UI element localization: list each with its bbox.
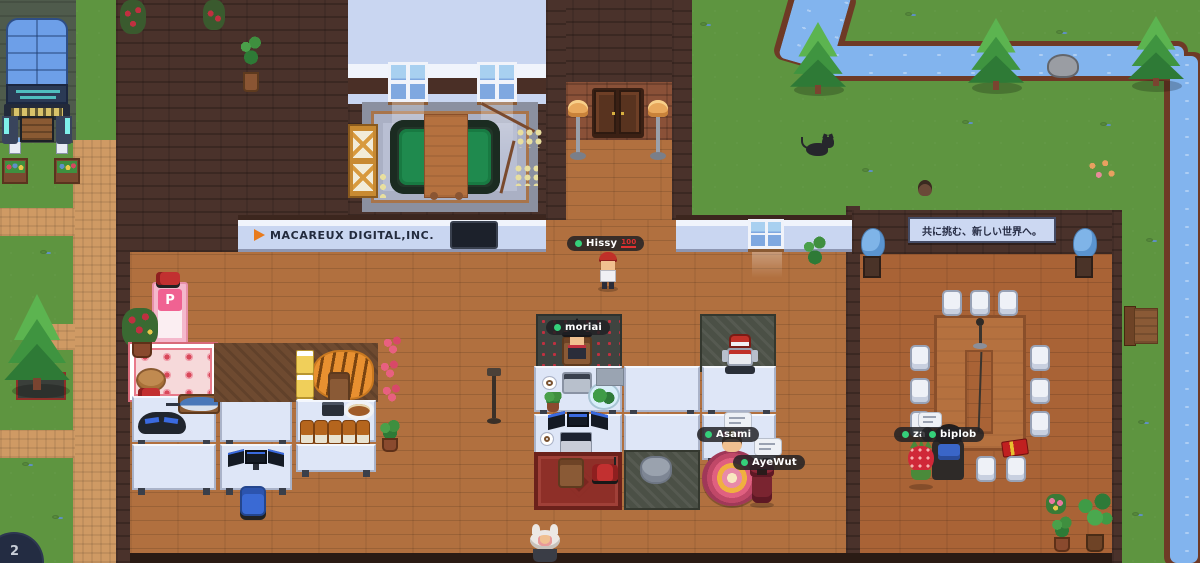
conference-chair [976,456,996,482]
grass-tuft [22,462,29,466]
flower-planter [2,158,28,184]
wall-divider [846,206,860,563]
grass-tuft [1056,30,1063,34]
wall-flower-bush [203,0,225,30]
statue-pedestal [1075,256,1093,278]
lamp-shade [648,100,668,117]
bench-seat [1134,308,1158,344]
plant-leaves [378,420,402,440]
rack-top [487,368,501,376]
river-water [1170,56,1198,563]
hanging-flowers [380,334,406,356]
bunny-robe [533,549,557,562]
plant-pot [1054,537,1070,552]
rc-antenna [614,457,616,465]
bean-bag [640,456,672,484]
company-sign: MACAREUX DIGITAL,INC. [254,224,464,246]
branch-decor [468,106,544,200]
puffin-statue [860,226,884,280]
plant-leaves [238,30,264,72]
truck-ramp [20,116,54,142]
mic-pole [979,325,982,344]
whiskey-bottle [300,420,314,444]
conference-chair [910,345,930,371]
robot-body [727,348,753,366]
robot-head [729,334,751,348]
printer [562,372,592,394]
desk [220,396,292,442]
corner-badge-count: 2 [10,544,19,559]
door-pane [353,131,373,158]
potted-plant [1050,516,1074,554]
planter-flowers [5,161,25,173]
entrance-column [672,0,692,220]
robot [724,334,756,376]
parking-sign-face [158,310,182,338]
company-sign-text: MACAREUX DIGITAL,INC. [270,229,434,242]
grass-tuft [862,168,869,172]
nametag-biplob: biplob [921,427,984,442]
pine-tree [790,22,846,94]
grass-tuft [905,12,912,16]
runner-knob [455,192,463,200]
entrance-lamp [568,100,588,166]
conference-chair [1030,345,1050,371]
conference-chair [942,290,962,316]
monitor-stand [253,464,259,470]
entrance-column [546,0,566,220]
bunny-face [538,535,552,546]
delivery-truck [2,16,74,142]
door-pane [353,164,373,191]
monitor-screen [164,417,179,424]
branch-leaves [514,164,538,186]
tall-potted-plant [238,30,264,94]
avatar-shadow [598,286,618,292]
branch-leaves [516,128,542,148]
hissy-legs [602,282,607,289]
office-chair-blue [240,486,266,516]
monitor-screen [268,449,284,467]
statue-bird-body [861,228,885,258]
window [388,62,428,102]
grass-tuft [40,250,47,254]
monitor-screen [245,450,267,464]
game-map[interactable]: MACAREUX DIGITAL,INC. 共に挑む、新しい世界へ。 P [0,0,1200,563]
statue-pedestal [863,256,881,278]
truck-band-text [20,96,56,99]
avatar-hissy[interactable] [596,252,620,292]
nametag-ayewut: AyeWut [733,455,805,470]
flower-pot [132,342,152,358]
whiskey-bottle [314,420,328,444]
conference-chair [998,290,1018,316]
robot-arm [722,350,728,362]
status-dot [575,240,582,247]
truck-cab-right [56,116,72,144]
status-dot [705,431,712,438]
rack-pole [492,376,496,418]
bar-counter [296,444,376,472]
robot-arm [752,350,758,362]
coat-rack [486,368,502,426]
large-plant [1076,490,1114,556]
triple-monitor [228,448,284,472]
monitor-screen [591,411,608,430]
path-branch-south [0,430,75,458]
conference-chair [1030,411,1050,437]
grass-tuft [700,22,707,26]
robot-treads [725,366,755,374]
lamp-shade [568,100,588,117]
player-name: Hissy [586,238,617,249]
entrance-lamp [648,100,668,166]
microphone-stand [972,318,988,350]
company-logo-icon [254,229,265,241]
moriai-body [568,345,586,359]
wall-bottom [130,553,852,563]
window [477,62,517,102]
monitor-screen [228,449,244,467]
bread-plate [344,400,374,420]
grass-tuft [1146,238,1153,242]
status-dot [741,459,748,466]
truck-canopy [6,18,68,88]
coffee-cup [542,376,557,390]
wall-tv [450,221,498,249]
desk [132,444,216,490]
coffee-machine [322,402,344,416]
corner-badge[interactable] [0,532,44,563]
parking-sign-plate: P [158,289,182,311]
conference-chair [1006,456,1026,482]
message-bubble [754,438,782,456]
plant-pot [382,438,398,452]
window [748,219,784,249]
status-dot [902,431,909,438]
wall-bottom [852,553,1112,563]
nametag-asami: Asami [697,427,759,442]
hanging-flowers [377,358,403,380]
flower-planter [54,158,80,184]
ayewut-robe [752,477,772,503]
avatar-shadow [909,484,933,490]
lamp-base [650,152,666,160]
river-rock [1047,54,1079,78]
lamp-pole [656,117,660,153]
bird [918,180,932,196]
hissy-legs [609,282,614,289]
plant-fronds [1076,490,1114,536]
wall-flower-bush [120,0,146,34]
plant-pot [1086,534,1104,552]
hundred-emoji-icon: 100 [621,239,636,248]
door-handle [621,112,624,115]
statue-bird-body [1073,228,1097,258]
whiskey-bottle [342,420,356,444]
path-branch-west [0,208,75,236]
pine-tree-large [4,294,70,390]
grass-tuft [1132,512,1139,516]
table-runner [424,114,468,198]
conference-chair [910,378,930,404]
banner-text: 共に挑む、新しい世界へ。 [922,223,1042,238]
monitor-screen [145,417,160,424]
pine-tree [968,18,1024,90]
beer-mug [296,350,314,374]
rack-base [487,418,501,424]
hissy-face [601,261,615,270]
hissy-body [600,270,616,282]
grass-tuft [962,120,969,124]
player-name: biplob [940,429,976,440]
player-name: Asami [716,429,751,440]
monitor-screen [548,411,565,430]
status-dot [554,324,561,331]
player-name: AyeWut [752,457,797,468]
truck-plate [11,108,63,116]
conference-chair [1030,378,1050,404]
whiskey-bottle [356,420,370,444]
player-name: moriai [565,322,602,333]
rc-car [592,464,618,481]
plant-pot [243,72,259,92]
parking-sign-letter: P [165,293,175,308]
plant-leaves [1050,516,1074,538]
door-handle [612,112,615,115]
monitor-screen [567,412,589,427]
orange-double-door[interactable] [348,124,378,198]
hanging-flowers [379,382,405,404]
wall-plant [800,230,830,272]
grass-tuft [52,515,59,519]
runner-knob [430,192,438,200]
biplob-body [938,444,960,460]
entrance-double-door[interactable] [592,88,644,138]
nametag-hissy: Hissy 100 [567,236,644,251]
toy-car [156,272,180,285]
terrarium [588,382,620,410]
planter-flowers [57,161,77,173]
pine-tree [1128,16,1184,86]
laptop [560,432,592,454]
potted-plant [378,420,402,454]
flower-patch [1086,158,1118,184]
coffee-cup [540,432,554,446]
truck-light [4,118,9,134]
status-dot [929,431,936,438]
pink-flower-plant [1046,494,1066,514]
conference-chair [970,290,990,316]
desk-plant [544,392,562,412]
avatar-za[interactable] [906,438,936,490]
nametag-moriai: moriai [546,320,610,335]
window-light [752,252,782,278]
za-skirt [911,470,931,480]
lamp-base [570,152,586,160]
avatar-bunny-hood[interactable] [528,524,562,563]
message-bubble [918,412,942,428]
za-strawberry-body [908,446,934,472]
banner-sign: 共に挑む、新しい世界へ。 [908,217,1056,243]
lamp-pole [576,117,580,153]
truck-band [6,84,68,104]
black-cat [806,135,836,159]
mic-base [973,343,987,349]
grass-tuft [1138,420,1145,424]
path-vertical [73,140,118,563]
truck-cab-left [2,116,18,144]
truck-band-text [16,90,60,93]
whiskey-bottle [328,420,342,444]
truck-light [65,118,70,134]
park-bench [1124,306,1164,344]
cat-tail [801,137,811,149]
bread [348,404,370,416]
moriai-face [570,337,584,345]
beer-mug [296,374,314,398]
grass-tuft [1100,122,1107,126]
puffin-statue [1072,226,1096,280]
desk [624,366,700,412]
desk-panel [596,368,624,386]
chair [558,458,584,488]
swordfish-body [180,397,218,411]
